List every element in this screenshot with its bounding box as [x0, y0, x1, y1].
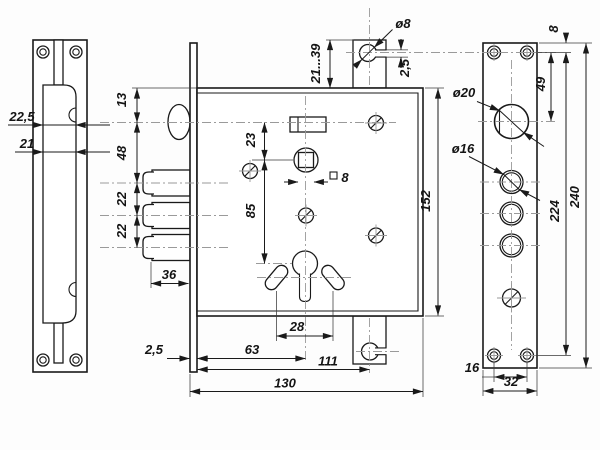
dim-adjust-range: 21...39 [308, 43, 323, 85]
screw-hole [70, 46, 82, 58]
dim-latch-to-follower: 23 [243, 132, 258, 148]
dim-edge-to-screw: 8 [546, 25, 561, 33]
dim-pin-diameter: ø8 [395, 16, 411, 31]
dim-pin-notch: 2,5 [397, 58, 412, 78]
screw-hole [37, 354, 49, 366]
dim-bolt-length: 36 [162, 267, 177, 282]
screw-hole [37, 46, 49, 58]
dim-latch-to-bolt: 48 [114, 145, 129, 161]
dim-plate-thickness: 2,5 [144, 342, 164, 357]
deadbolts [143, 170, 190, 261]
dim-plate-width: 32 [504, 374, 519, 389]
stop-slot [290, 117, 326, 132]
top-notch-erase [375, 50, 389, 56]
dim-oval-span: 28 [289, 319, 305, 334]
technical-drawing-canvas: 22,5 21 13 48 22 22 36 2,5 23 85 8 ø8 2,… [0, 0, 600, 450]
dim-follower-square: 8 [341, 170, 349, 185]
latch-rod-bottom [54, 323, 63, 363]
spindle-square-hole [299, 153, 314, 168]
dim-ring-diameter: ø16 [452, 141, 475, 156]
dim-screw-span: 224 [547, 199, 562, 222]
face-strike-plate-view [483, 43, 537, 368]
latch-rod-top [54, 40, 63, 85]
dim-top-to-latch: 13 [114, 92, 129, 107]
dim-case-height: 152 [418, 189, 433, 211]
dim-block-backset: 111 [318, 354, 338, 369]
dim-case-depth: 130 [274, 376, 296, 391]
dim-screw-to-hole: 49 [533, 76, 548, 92]
dim-hole-diameter: ø20 [453, 85, 476, 100]
side-strike-plate-view [33, 40, 87, 372]
screw-hole [70, 354, 82, 366]
dim-bolt-gap-1: 22 [114, 191, 129, 207]
keyhole-erase [300, 272, 311, 302]
dim-screw-gap: 16 [465, 360, 480, 375]
dim-bolt-gap-2: 22 [114, 223, 129, 239]
dim-follower-to-cylinder: 85 [243, 203, 258, 218]
dim-cylinder-backset: 63 [245, 342, 260, 357]
dim-cover-width: 22,5 [8, 109, 35, 124]
lock-faceplate [190, 43, 197, 372]
dim-bolt-width: 21 [19, 136, 34, 151]
dim-plate-length: 240 [567, 185, 582, 208]
latch-bolt [168, 105, 190, 140]
lock-technical-drawing-page: 22,5 21 13 48 22 22 36 2,5 23 85 8 ø8 2,… [0, 0, 600, 450]
lock-case-view [143, 40, 423, 372]
